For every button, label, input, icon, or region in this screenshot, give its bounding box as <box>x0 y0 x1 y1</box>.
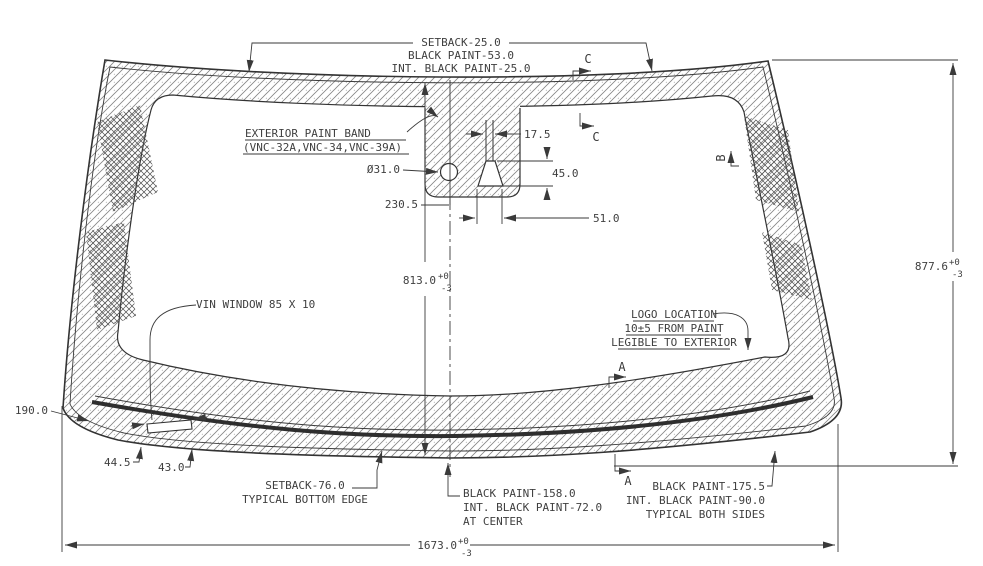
logo-callout-2: 10±5 FROM PAINT <box>624 322 724 335</box>
section-a-bottom-label: A <box>624 474 632 488</box>
hole-dia-label: Ø31.0 <box>367 163 400 176</box>
mirror-button-hole <box>441 164 458 181</box>
section-c-top-label: C <box>584 52 591 66</box>
pad-offset-label: 230.5 <box>385 198 418 211</box>
logo-callout-1: LOGO LOCATION <box>631 308 717 321</box>
bottom-sides-leader <box>767 451 775 486</box>
center-height-tol-minus: -3 <box>441 284 452 294</box>
bracket-base-width-label: 51.0 <box>593 212 620 225</box>
section-c-bottom-label: C <box>592 130 599 144</box>
top-edge-callout-2: BLACK PAINT-53.0 <box>408 49 514 62</box>
overall-height-label: 877.6 <box>915 260 948 273</box>
section-b-label: B <box>714 154 728 161</box>
vin-offset-right-label: 43.0 <box>158 461 185 474</box>
paint-band-callout-2: (VNC-32A,VNC-34,VNC-39A) <box>243 141 402 154</box>
top-edge-callout-3: INT. BLACK PAINT-25.0 <box>391 62 530 75</box>
section-a-top-label: A <box>618 360 626 374</box>
sensor-pad-hatch <box>425 86 520 197</box>
drawing-canvas: SETBACK-25.0 BLACK PAINT-53.0 INT. BLACK… <box>0 0 983 566</box>
section-a-bottom-marker <box>615 454 631 471</box>
overall-width-tol-minus: -3 <box>461 549 472 559</box>
top-edge-callout-1: SETBACK-25.0 <box>421 36 500 49</box>
corner-band-label: 190.0 <box>15 404 48 417</box>
overall-width-tol-plus: +0 <box>458 537 469 547</box>
overall-height-tol-plus: +0 <box>949 258 960 268</box>
overall-width-label: 1673.0 <box>417 539 457 552</box>
bottom-edge-callout-1: SETBACK-76.0 <box>265 479 344 492</box>
bottom-sides-callout-3: TYPICAL BOTH SIDES <box>646 508 765 521</box>
top-callout-leader-left <box>249 43 413 72</box>
bracket-height-label: 45.0 <box>552 167 579 180</box>
bottom-center-callout-3: AT CENTER <box>463 515 523 528</box>
bottom-center-callout-2: INT. BLACK PAINT-72.0 <box>463 501 602 514</box>
vin-offset-right-leader <box>185 449 192 467</box>
center-height-label: 813.0 <box>403 274 436 287</box>
windshield-drawing: SETBACK-25.0 BLACK PAINT-53.0 INT. BLACK… <box>0 0 983 566</box>
bottom-edge-callout-2: TYPICAL BOTTOM EDGE <box>242 493 368 506</box>
paint-band-callout-1: EXTERIOR PAINT BAND <box>245 127 371 140</box>
sensor-pad <box>425 86 520 197</box>
overall-height-tol-minus: -3 <box>952 270 963 280</box>
bottom-sides-callout-1: BLACK PAINT-175.5 <box>652 480 765 493</box>
center-height-tol-plus: +0 <box>438 272 449 282</box>
bottom-sides-callout-2: INT. BLACK PAINT-90.0 <box>626 494 765 507</box>
bracket-top-width-label: 17.5 <box>524 128 551 141</box>
logo-callout-3: LEGIBLE TO EXTERIOR <box>611 336 737 349</box>
vin-offset-left-label: 44.5 <box>104 456 131 469</box>
vin-offset-left-leader <box>133 447 141 462</box>
bottom-center-callout-1: BLACK PAINT-158.0 <box>463 487 576 500</box>
bottom-center-leader <box>448 463 460 496</box>
vin-window-label: VIN WINDOW 85 X 10 <box>196 298 315 311</box>
